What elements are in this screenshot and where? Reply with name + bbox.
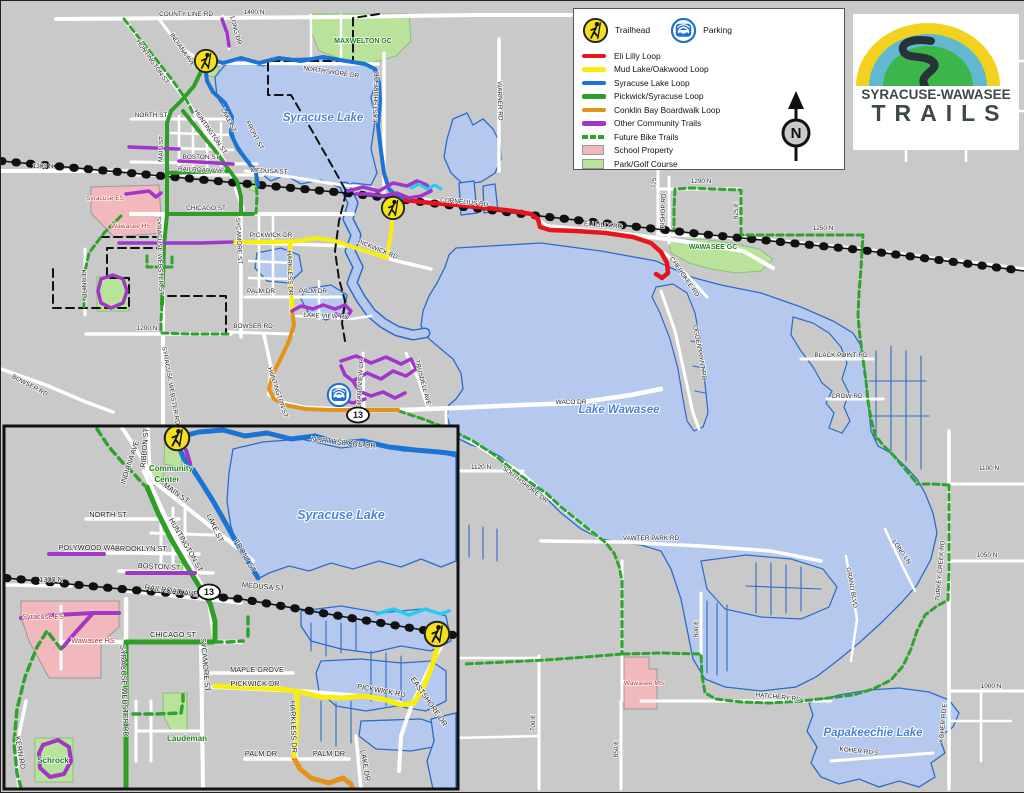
- map-label: HARKLESS DR: [288, 701, 299, 753]
- map-label: SYRACUSE WEBSTER ST: [155, 217, 165, 296]
- road: [56, 15, 571, 19]
- map-label: INDIANA AVE: [168, 32, 196, 68]
- legend-swatch-icon: [582, 159, 606, 169]
- map-label: PALM DR: [299, 288, 327, 295]
- svg-text:13: 13: [353, 410, 363, 420]
- map-label: POLYWOOD WAY: [58, 543, 119, 552]
- map-label: 1400 N: [244, 9, 265, 16]
- legend-item: Eli Lilly Loop: [582, 49, 836, 63]
- map-label: PALM DR: [313, 749, 345, 758]
- map-label: 1000 N: [981, 683, 1002, 690]
- legend-swatch-icon: [582, 145, 606, 155]
- map-label: 1050 N: [977, 552, 998, 559]
- future-inset-chicago-e: [215, 641, 243, 642]
- map-label: NORTH ST: [135, 112, 168, 119]
- map-label: 850 E: [613, 740, 621, 757]
- map-label: Papakeechie Lake: [823, 727, 923, 739]
- map-label: 1100 N: [979, 465, 1000, 472]
- map-label: BISHOP RD: [659, 193, 667, 229]
- map-label: CHICAGO ST: [186, 205, 226, 212]
- legend-item-label: Mud Lake/Oakwood Loop: [614, 64, 709, 74]
- parking-icon: [328, 384, 350, 406]
- map-label: Syracuse ES: [22, 612, 64, 621]
- legend-item: Mud Lake/Oakwood Loop: [582, 63, 836, 77]
- north-arrow: N: [774, 91, 818, 165]
- highway-shield: 13: [198, 585, 220, 600]
- map-label: Wawasee HS: [71, 636, 114, 645]
- legend-swatch-icon: [582, 94, 606, 99]
- community-grandview: [341, 356, 416, 381]
- parking-icon: [670, 17, 697, 44]
- map-label: 1120 N: [471, 464, 492, 471]
- map-label: HARKLESS DR: [285, 250, 294, 296]
- legend-swatch-icon: [582, 135, 606, 140]
- map-label: TURKEY CREEK RD: [934, 540, 946, 601]
- map-label: HUNTINGTON ST: [134, 39, 170, 86]
- map-label: Syracuse Lake: [297, 508, 385, 522]
- map-label: 1250 N: [813, 225, 834, 232]
- trailhead-icon: [425, 622, 450, 647]
- inset-map: INDIANA AVERIBBON STMAIN STNORTH STPOLYW…: [4, 426, 458, 789]
- trailhead-icon: [582, 17, 609, 44]
- trailhead-icon: [165, 426, 190, 451]
- map-label: BROOKLYN ST: [115, 544, 168, 553]
- map-screenshot: COUNTY LINE RD1400 NHUNTINGTON STINDIANA…: [0, 0, 1024, 793]
- legend-item-label: Other Community Trails: [614, 118, 701, 128]
- map-label: Syracuse ES: [86, 195, 125, 202]
- svg-text:13: 13: [204, 587, 214, 597]
- map-label: LAKE VIEW RD: [303, 312, 349, 321]
- map-label: Lake Wawasee: [579, 404, 661, 416]
- north-arrowhead-icon: [788, 91, 804, 109]
- map-label: MAIN ST: [158, 136, 166, 162]
- future-1100n: [917, 484, 949, 485]
- map-label: BOSTON ST: [183, 154, 220, 161]
- road: [227, 332, 293, 334]
- legend-item-label: Park/Golf Course: [614, 159, 678, 169]
- map-label: Community: [149, 464, 194, 473]
- map-label: WACO DR: [556, 399, 587, 406]
- map-label: PICKWICK DR: [250, 232, 293, 239]
- parking-label: Parking: [703, 25, 732, 35]
- legend-item-label: School Property: [614, 145, 673, 155]
- map-label: PALM DR: [245, 749, 277, 758]
- legend-swatch-icon: [582, 121, 606, 126]
- logo-line2: TRAILS: [861, 100, 1019, 127]
- map-label: 800 E: [693, 620, 701, 637]
- map-label: 825 E: [733, 202, 741, 219]
- map-label: SYCAMORE ST: [234, 218, 243, 265]
- map-label: WAWASEE GC: [689, 244, 738, 251]
- north-label: N: [791, 125, 802, 142]
- trailhead-label: Trailhead: [615, 25, 650, 35]
- road: [452, 736, 539, 738]
- map-label: Syracuse Lake: [283, 112, 364, 124]
- map-label: CHICAGO ST: [150, 630, 196, 639]
- map-label: 1290 N: [691, 178, 712, 185]
- trailhead-icon: [382, 197, 404, 219]
- map-label: 1300 N: [33, 163, 54, 170]
- boundary-dashed: [168, 296, 226, 334]
- legend-swatch-icon: [582, 54, 606, 59]
- map-label: NORTH ST: [89, 510, 127, 519]
- map-label: COUNTY LINE RD: [159, 11, 213, 18]
- map-label: LONG DR: [228, 16, 242, 46]
- map-label: 775: [651, 177, 658, 188]
- highway-shield: 13: [347, 408, 369, 423]
- map-label: 1300 N: [39, 575, 63, 584]
- pickwick-loop-a: [167, 65, 204, 214]
- legend-swatch-icon: [582, 108, 606, 113]
- map-label: BOWSER RD: [233, 323, 273, 330]
- map-label: CROW RD: [831, 393, 863, 400]
- map-label: Center: [154, 475, 179, 484]
- community-north-w: [129, 147, 179, 149]
- future-bishop-box: [674, 188, 741, 234]
- logo: SYRACUSE-WAWASEE TRAILS: [853, 14, 1019, 150]
- map-label: MAPLE GROVE: [230, 665, 284, 674]
- trailhead-icon: [195, 50, 217, 72]
- legend-item-label: Syracuse Lake Loop: [614, 78, 690, 88]
- map-label: Laudeman: [167, 734, 207, 743]
- legend-item: Syracuse Lake Loop: [582, 76, 836, 90]
- map-label: WARNER RD: [495, 81, 503, 121]
- legend-item-label: Conklin Bay Boardwalk Loop: [614, 105, 720, 115]
- map-label: 1200 N: [137, 325, 158, 332]
- map-label: 700 E: [530, 714, 538, 731]
- map-label: MAXWELTON GC: [334, 38, 392, 45]
- road: [249, 278, 291, 279]
- community-pickwick-w: [119, 242, 232, 243]
- legend-header: Trailhead Parking: [582, 15, 836, 45]
- legend-item-label: Pickwick/Syracuse Loop: [614, 91, 703, 101]
- map-label: TRUSDELL AVE: [413, 359, 432, 406]
- water-body: [444, 113, 501, 184]
- logo-arch-icon: [853, 20, 1003, 86]
- map-label: VAWTER PARK RD: [623, 535, 680, 542]
- legend-swatch-icon: [582, 81, 606, 86]
- legend-item-label: Eli Lilly Loop: [614, 51, 661, 61]
- map-label: Wawasee MS: [624, 680, 665, 687]
- map-label: PALM DR: [247, 288, 275, 295]
- map-label: BLACK POINT RD: [814, 352, 868, 359]
- legend-swatch-icon: [582, 67, 606, 72]
- map-label: PICKWICK DR: [230, 679, 279, 688]
- map-label: Schrock: [37, 756, 69, 765]
- legend-item-label: Future Bike Trails: [614, 132, 679, 142]
- map-label: KERN RD: [79, 269, 87, 298]
- map-label: Wawasee HS: [111, 223, 151, 230]
- future-webster-1200n: [161, 304, 229, 334]
